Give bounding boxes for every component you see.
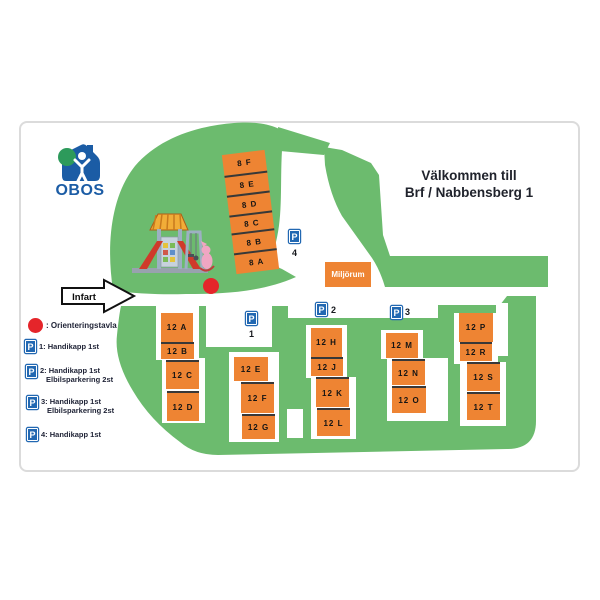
legend-p1-icon: P bbox=[25, 340, 36, 353]
building-miljorum: Miljörum bbox=[325, 262, 371, 287]
obos-logo-icon bbox=[58, 144, 100, 181]
building-12c: 12 C bbox=[166, 360, 199, 389]
legend-p4-icon: P bbox=[27, 428, 38, 441]
legend-p1-text: 1: Handikapp 1st bbox=[39, 342, 99, 351]
parking-sign-1-number: 1 bbox=[246, 329, 257, 339]
parking-sign-4-number: 4 bbox=[289, 248, 300, 258]
building-12f: 12 F bbox=[241, 382, 274, 413]
building-12r: 12 R bbox=[460, 342, 492, 361]
parking-sign-3-icon: P bbox=[391, 306, 402, 319]
building-12t: 12 T bbox=[467, 392, 500, 420]
legend-p2-text2: Elbilsparkering 2st bbox=[46, 375, 113, 384]
legend-p3-text2: Elbilsparkering 2st bbox=[47, 406, 114, 415]
building-12e: 12 E bbox=[234, 357, 268, 381]
building-12g: 12 G bbox=[242, 414, 275, 439]
welcome-title-line1: Välkommen till bbox=[384, 168, 554, 185]
welcome-title: Välkommen till Brf / Nabbensberg 1 bbox=[384, 168, 554, 201]
entrance-label: Infart bbox=[64, 292, 104, 303]
legend-orientation-label: : Orienteringstavla bbox=[46, 321, 117, 330]
obos-logo-text: OBOS bbox=[48, 182, 112, 200]
building-12s: 12 S bbox=[467, 362, 500, 391]
parking-sign-3-number: 3 bbox=[405, 307, 410, 317]
welcome-title-line2: Brf / Nabbensberg 1 bbox=[384, 185, 554, 202]
building-12d: 12 D bbox=[167, 391, 199, 421]
building-12j: 12 J bbox=[311, 357, 343, 376]
legend-p2-text1: 2: Handikapp 1st bbox=[40, 366, 100, 375]
orientation-board-marker bbox=[203, 278, 219, 294]
green-bridge bbox=[278, 127, 330, 155]
parking-sign-2-number: 2 bbox=[331, 305, 336, 315]
parking-sign-4-icon: P bbox=[289, 230, 300, 243]
building-12o: 12 O bbox=[392, 386, 426, 413]
site-map-page: { "brand": {"name": "OBOS"}, "title": {"… bbox=[0, 0, 600, 600]
building-12b: 12 B bbox=[161, 342, 194, 359]
parking-sign-2-icon: P bbox=[316, 303, 327, 316]
building-12k: 12 K bbox=[316, 377, 349, 407]
building-12n: 12 N bbox=[392, 359, 425, 385]
legend-p2-icon: P bbox=[26, 365, 37, 378]
building-12m: 12 M bbox=[386, 333, 418, 358]
legend-orientation-dot bbox=[28, 318, 43, 333]
building-12l: 12 L bbox=[317, 408, 350, 436]
building-12h: 12 H bbox=[311, 328, 342, 357]
building-12p: 12 P bbox=[459, 313, 493, 342]
legend-p4-text: 4: Handikapp 1st bbox=[41, 430, 101, 439]
legend-p3-text1: 3: Handikapp 1st bbox=[41, 397, 101, 406]
parking-sign-1-icon: P bbox=[246, 312, 257, 325]
legend-p3-icon: P bbox=[27, 396, 38, 409]
building-12a: 12 A bbox=[161, 313, 193, 342]
